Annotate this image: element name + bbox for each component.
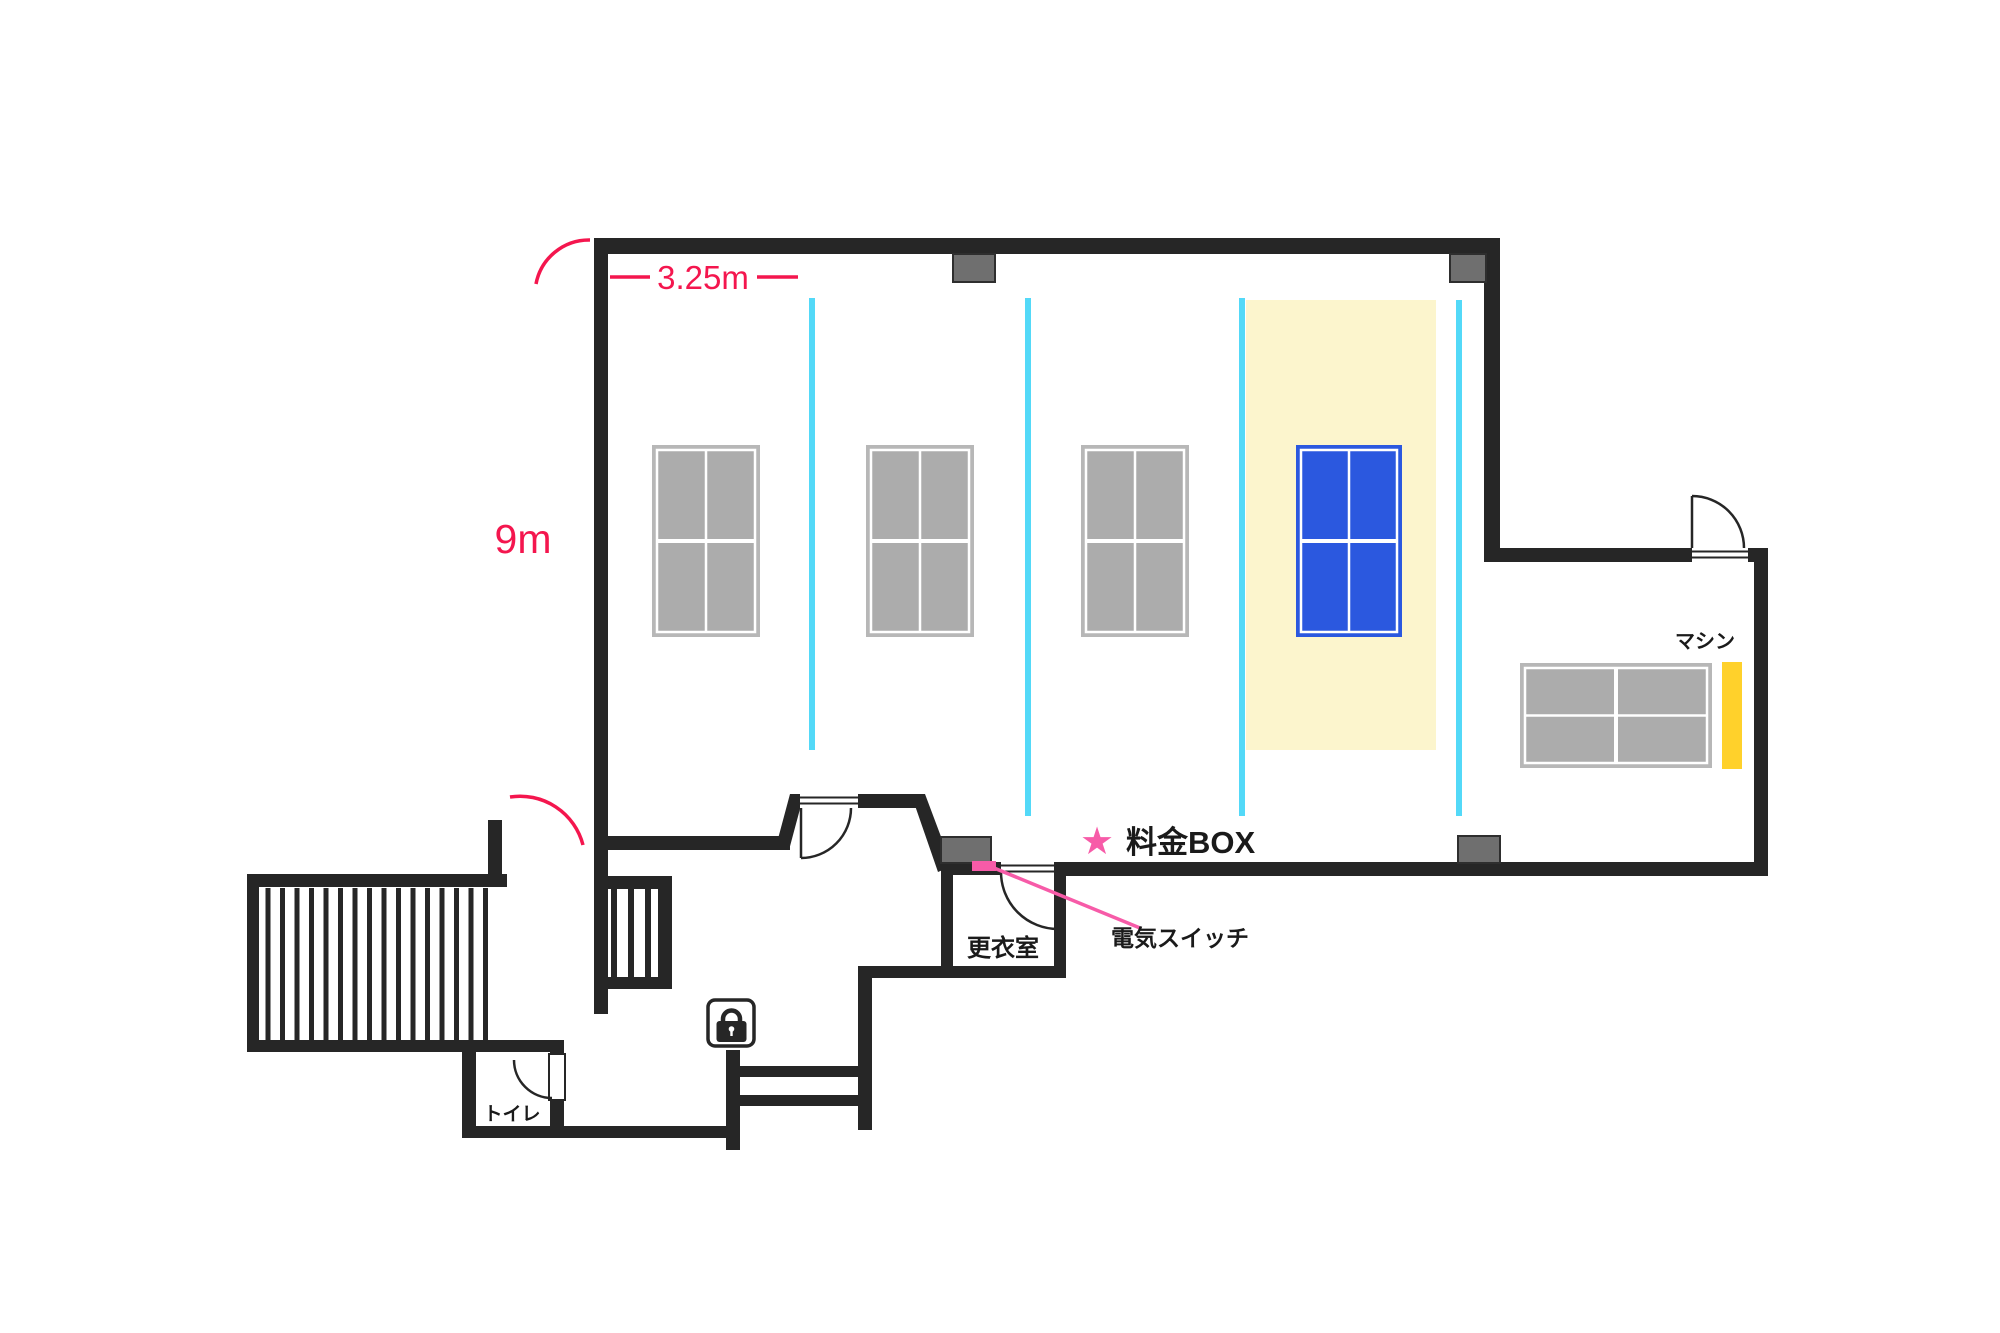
light-switch-marker xyxy=(972,861,996,871)
floor-plan-svg: 3.25m 9m ★ 料金BOX 電気スイッチ マシン 更衣室 トイレ xyxy=(0,0,2000,1333)
changing-room-label: 更衣室 xyxy=(967,934,1039,962)
wall-bottom-left xyxy=(594,836,790,850)
wall-small-stairs-bottom xyxy=(594,977,672,989)
wall-changing-room-bottom xyxy=(858,966,1066,978)
table-gray-2 xyxy=(866,445,974,637)
toilet-label: トイレ xyxy=(483,1104,540,1125)
pillar-bottom-right xyxy=(1458,836,1500,863)
dimension-height-label: 9m xyxy=(495,516,552,562)
wall-left xyxy=(594,238,608,1014)
entry-step xyxy=(740,1095,858,1106)
table-gray-3 xyxy=(1081,445,1189,637)
wall-bottom-right xyxy=(1066,862,1768,876)
wall-annex-right xyxy=(1754,548,1768,876)
door-leaf xyxy=(549,1054,565,1100)
wall-right-upper xyxy=(1484,238,1500,562)
machine-table xyxy=(1520,663,1712,768)
machine-strip xyxy=(1722,662,1742,769)
pillar-top-1 xyxy=(953,254,995,282)
star-icon: ★ xyxy=(1080,821,1114,863)
wall-changing-room-left xyxy=(941,862,953,978)
entry-step xyxy=(740,1066,858,1077)
wall-corridor-bottom xyxy=(462,1126,740,1138)
lock-icon xyxy=(708,1000,754,1046)
wall-small-stairs-right xyxy=(658,876,672,989)
wall-changing-room-right xyxy=(1054,862,1066,978)
wall-stub-above-stairs xyxy=(488,820,502,874)
fee-box-label: 料金BOX xyxy=(1126,825,1255,860)
table-gray-1 xyxy=(652,445,760,637)
wall-stairs-left xyxy=(247,874,259,1052)
door-opening xyxy=(1692,546,1748,564)
fee-box-annotation: ★ 料金BOX xyxy=(1080,821,1256,863)
pillar-top-2 xyxy=(1450,254,1486,282)
table-blue xyxy=(1296,445,1402,637)
wall-stairs-top xyxy=(247,874,507,887)
wall-vestibule-top xyxy=(856,794,920,808)
wall-top xyxy=(594,238,1500,254)
lock-keyhole-slot xyxy=(730,1030,732,1036)
light-switch-label: 電気スイッチ xyxy=(1111,925,1249,951)
dimension-width-label: 3.25m xyxy=(657,259,749,296)
pillar-vestibule xyxy=(941,837,991,863)
machine-label: マシン xyxy=(1675,631,1735,653)
wall-toilet-left xyxy=(462,1040,476,1138)
wall-stairs-bottom xyxy=(247,1040,564,1052)
door-opening xyxy=(800,792,858,810)
wall-corridor-right xyxy=(858,966,872,1130)
